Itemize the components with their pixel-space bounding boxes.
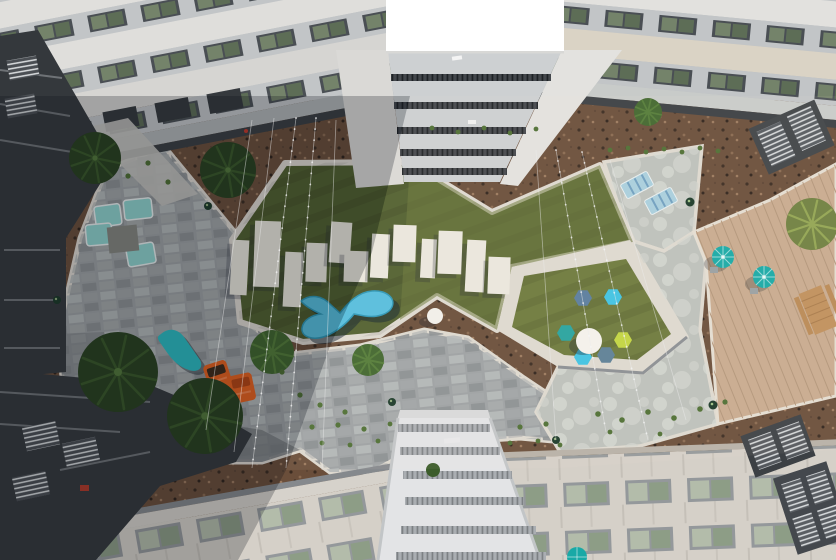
courtyard-aerial-photo: [0, 0, 836, 560]
overexposed-rooftop: [386, 0, 564, 53]
